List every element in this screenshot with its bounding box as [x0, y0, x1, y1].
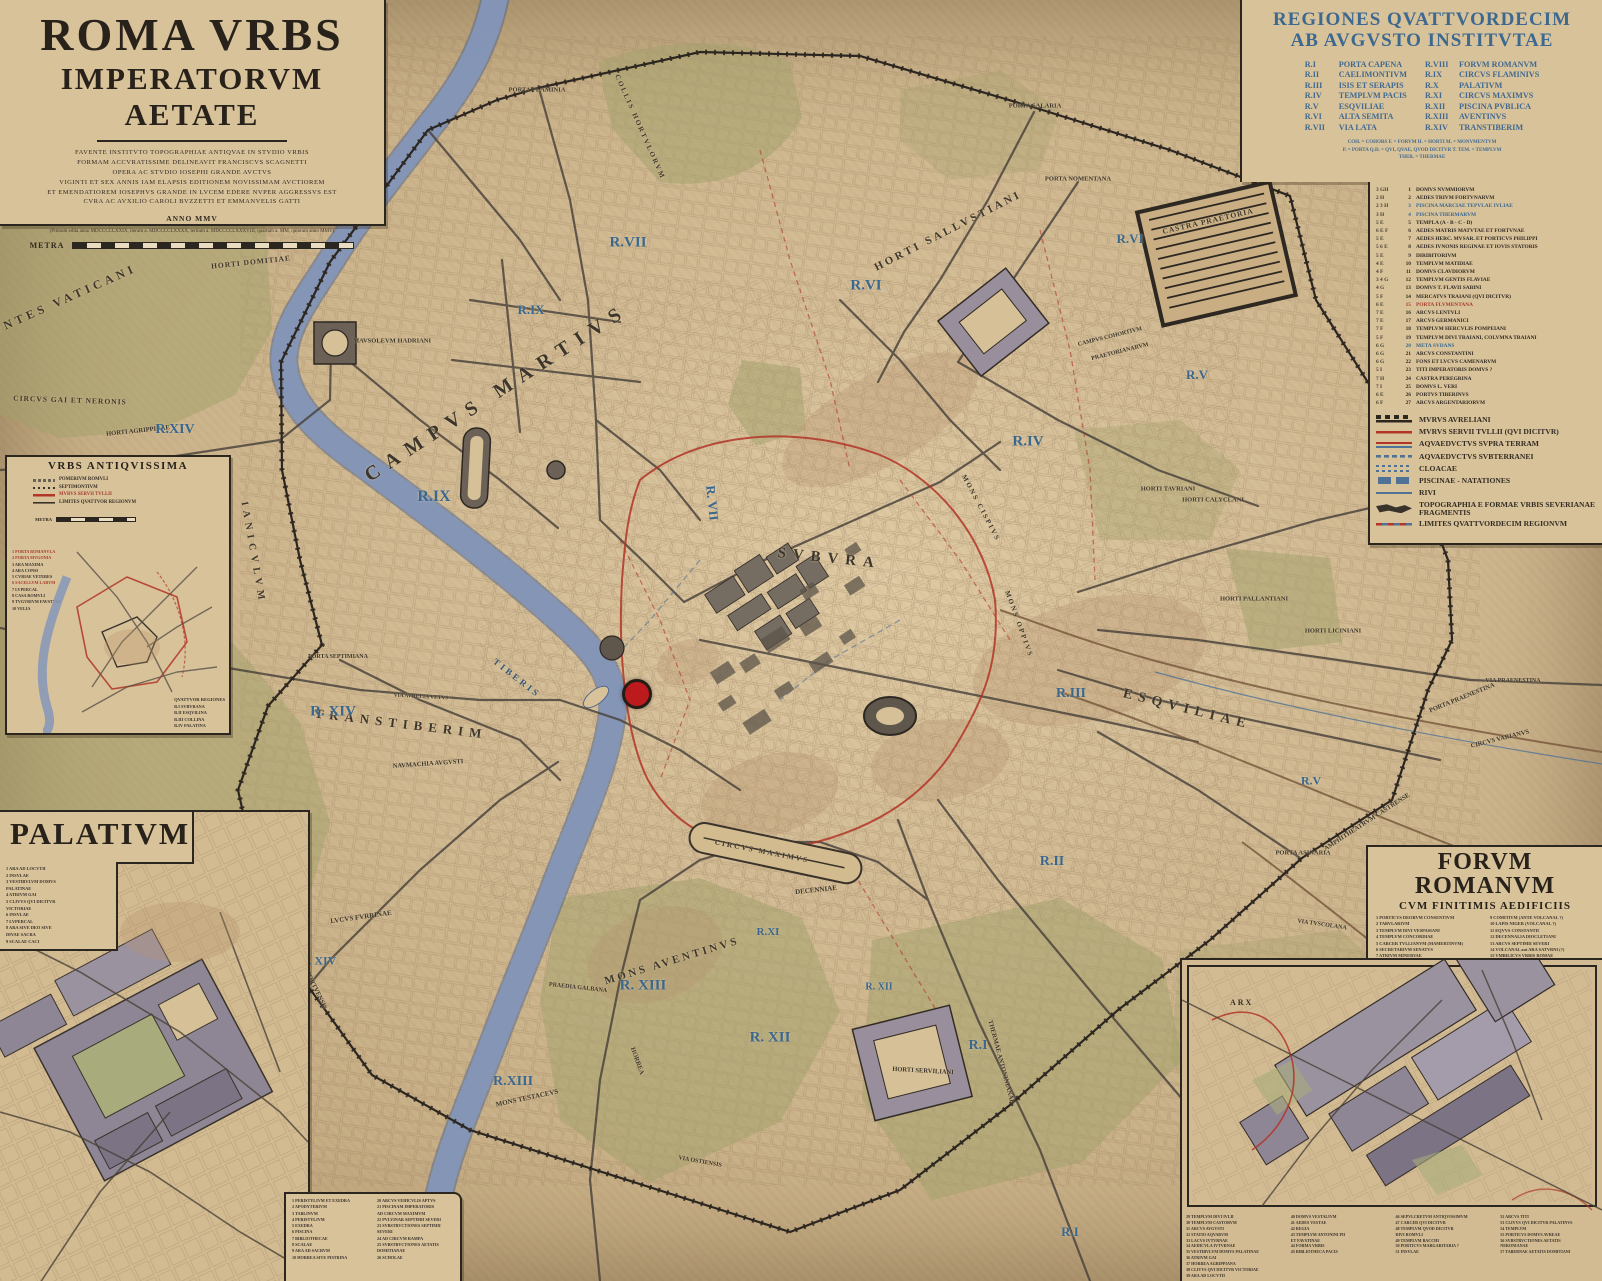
region-code: R.XI [1425, 91, 1459, 102]
south-legend-left: 1 PERISTYLIVM ET EXEDRA2 APODYTERIVM3 TA… [292, 1198, 371, 1281]
pantheon [547, 461, 565, 479]
region-code: R.XIV [1425, 123, 1459, 134]
south-legend-box: 1 PERISTYLIVM ET EXEDRA2 APODYTERIVM3 TA… [284, 1192, 462, 1281]
stadium-domitiani [460, 427, 491, 508]
forum-bottom-col1: 29 TEMPLVM DIVI IVLII30 TEMPLVM CASTORVM… [1186, 1214, 1286, 1279]
legend-symbol-label: MVRVS AVRELIANI [1419, 416, 1491, 424]
urbs-scale-label: METRA [35, 517, 52, 522]
forum-bottom-col4: 52 ARCVS TITI53 CLIVVS QVI DICITVR PALAT… [1500, 1214, 1600, 1279]
index-number: 4 [1398, 211, 1411, 219]
legend-symbol-label: MVRVS SERVII TVLLII (QVI DICITVR) [1419, 428, 1559, 436]
index-row: 7 F18TEMPLVM HERCVLIS POMPEIANI [1376, 325, 1598, 333]
index-row: 5 E7AEDES HERC. MVSAR. ET PORTICVS PHILI… [1376, 235, 1598, 243]
forum-arx-label: ARX [1230, 998, 1253, 1007]
urbs-inset-legend: POMERIVM ROMVLISEPTIMONTIVMMVRVS SERVII … [33, 477, 136, 507]
forum-romanum-header: FORVM ROMANVM CVM FINITIMIS AEDIFICIIS 1… [1366, 845, 1602, 958]
index-label: DOMVS NVMMIORVM [1416, 186, 1474, 194]
forum-title: FORVM ROMANVM [1368, 850, 1602, 898]
map-subtitle: IMPERATORVM AETATE [0, 61, 384, 133]
index-number: 27 [1398, 399, 1411, 407]
index-row: 5 F14MERCATVS TRAIANI (QVI DICITVR) [1376, 293, 1598, 301]
forum-item: 45 BIBLIOTHECA PACIS [1291, 1249, 1391, 1255]
colosseum-arena [876, 707, 904, 725]
legend-symbol-label: PISCINAE - NATATIONES [1419, 477, 1510, 485]
south-item: 10 HORREA SIVE PISTRINA [292, 1255, 371, 1261]
index-grid-ref: 4 E [1376, 260, 1398, 268]
legend-symbol-label: RIVI [1419, 489, 1436, 497]
scale-label: METRA [30, 241, 65, 250]
index-number: 19 [1398, 334, 1411, 342]
septimontium-symbol [33, 485, 55, 491]
index-row: 6 E15PORTA FLVMENTANA [1376, 301, 1598, 309]
region-row: R.IPORTA CAPENA [1305, 60, 1407, 71]
legend-symbol-row: TOPOGRAPHIA E FORMAE VRBIS SEVERIANAE FR… [1376, 501, 1598, 517]
index-number: 3 [1398, 202, 1411, 210]
index-row: 4 G13DOMVS T. FLAVII SABINI [1376, 284, 1598, 292]
index-number: 20 [1398, 342, 1411, 350]
index-number: 18 [1398, 325, 1411, 333]
map-title: ROMA VRBS [0, 8, 384, 61]
region-code: R.XII [1425, 102, 1459, 113]
rivi-symbol [1376, 489, 1412, 498]
region-name: PISCINA PVBLICA [1459, 102, 1531, 113]
index-grid-ref: 7 F [1376, 325, 1398, 333]
region-name: TEMPLVM PACIS [1339, 91, 1407, 102]
cloacae-symbol [1376, 464, 1412, 473]
urbs-legend-row: POMERIVM ROMVLI [33, 477, 136, 483]
index-grid-ref: 7 E [1376, 317, 1398, 325]
index-row: 6 G22FONS ET LVCVS CAMENARVM [1376, 358, 1598, 366]
index-number: 10 [1398, 260, 1411, 268]
palatium-item: VICTORIAE [6, 906, 113, 913]
abbreviation-line: P. = PORTA Q.D. = QVI, QVAE, QVOD DICITV… [1242, 147, 1602, 155]
index-row: 3 H4PISCINA THERMARVM [1376, 211, 1598, 219]
index-row: 7 I25DOMVS L. VERI [1376, 383, 1598, 391]
theatrum-marcelli [600, 636, 624, 660]
legend-symbol-label: AQVAEDVCTVS SVPRA TERRAM [1419, 440, 1539, 448]
title-ornament-rule [97, 140, 287, 142]
index-label: ARCVS ARGENTARIORVM [1416, 399, 1485, 407]
servian-symbol [1376, 428, 1412, 437]
region-row: R.XIVTRANSTIBERIM [1425, 123, 1539, 134]
index-number: 17 [1398, 317, 1411, 325]
region-code: R.IX [1425, 70, 1459, 81]
region-name: PALATIVM [1459, 81, 1502, 92]
index-label: PISCINA MARCIAE TEPVLAE IVLIAE [1416, 202, 1513, 210]
index-number: 16 [1398, 309, 1411, 317]
region-code: R.IV [1305, 91, 1339, 102]
index-label: ARCVS CONSTANTINI [1416, 350, 1474, 358]
index-label: TEMPLVM GENTIS FLAVIAE [1416, 276, 1490, 284]
region-name: ESQVILIAE [1339, 102, 1385, 113]
index-grid-ref: 6 E [1376, 301, 1398, 309]
index-label: TEMPLVM HERCVLIS POMPEIANI [1416, 325, 1506, 333]
piscinae-symbol [1376, 476, 1412, 485]
palatium-item: 4 ATRIVM GAI [6, 892, 113, 899]
region-name: CAELIMONTIVM [1339, 70, 1407, 81]
region-name: CIRCVS FLAMINIVS [1459, 70, 1539, 81]
region-name: CIRCVS MAXIMVS [1459, 91, 1533, 102]
regiones-legend: REGIONES QVATTVORDECIM AB AVGVSTO INSTIT… [1240, 0, 1602, 182]
index-grid-ref: 6 E F [1376, 227, 1398, 235]
index-grid-ref: 2 3 H [1376, 202, 1398, 210]
index-row: 4 E10TEMPLVM MATIDIAE [1376, 260, 1598, 268]
index-label: TEMPLA (A - B - C - D) [1416, 219, 1472, 227]
index-row: 7 E17ARCVS GERMANICI [1376, 317, 1598, 325]
region-code: R.II [1305, 70, 1339, 81]
index-number: 25 [1398, 383, 1411, 391]
south-item: 26 SCHOLAE [377, 1255, 456, 1261]
region-name: TRANSTIBERIM [1459, 123, 1523, 134]
palatium-item: 8 ARA SIVE DEO SIVE [6, 925, 113, 932]
forum-bottom-col3: 46 SEPVLCRETVM ANTIQVISSIMVM47 CARCER QV… [1396, 1214, 1496, 1279]
index-grid-ref: 6 E [1376, 391, 1398, 399]
index-row: 7 H24CASTRA PEREGRINA [1376, 375, 1598, 383]
index-label: PORTVS TIBERINVS [1416, 391, 1469, 399]
urbs-scale-bar [56, 517, 136, 522]
urbs-legend-label: MVRVS SERVII TVLLII [59, 492, 112, 497]
index-grid-ref: 5 F [1376, 334, 1398, 342]
index-number: 8 [1398, 243, 1411, 251]
index-number: 9 [1398, 252, 1411, 260]
index-grid-ref: 5 E [1376, 219, 1398, 227]
index-label: CASTRA PEREGRINA [1416, 375, 1472, 383]
index-label: MERCATVS TRAIANI (QVI DICITVR) [1416, 293, 1511, 301]
index-row: 5 6 E8AEDES IVNONIS REGINAE ET IOVIS STA… [1376, 243, 1598, 251]
index-number: 11 [1398, 268, 1411, 276]
index-label: DOMVS CLAVDIORVM [1416, 268, 1475, 276]
pomerium-symbol [33, 477, 55, 483]
region-name: ISIS ET SERAPIS [1339, 81, 1404, 92]
palatium-item: 5 CLIVVS QVI DICITVR [6, 899, 113, 906]
index-number: 7 [1398, 235, 1411, 243]
index-number: 2 [1398, 194, 1411, 202]
region-name: FORVM ROMANVM [1459, 60, 1537, 71]
target-marker[interactable] [622, 679, 652, 709]
palatium-inset: PALATIVM 1 ARA AD LOCVTII2 INSVLAE3 VEST… [0, 810, 310, 1281]
urbs-sites-list: 1 PORTA ROMANVLA2 PORTA MVGONIA3 ARA MAX… [12, 549, 70, 612]
region-row: R.VIALTA SEMITA [1305, 112, 1407, 123]
region-code: R.X [1425, 81, 1459, 92]
index-row: 2 3 H3PISCINA MARCIAE TEPVLAE IVLIAE [1376, 202, 1598, 210]
index-grid-ref: 6 G [1376, 358, 1398, 366]
regiones-abbreviations: COH. = COHORS F. = FORVM H. = HORTI M. =… [1242, 139, 1602, 162]
forum-bottom-col2: 40 DOMVS VESTALIVM41 AEDES VESTAE42 REGI… [1291, 1214, 1391, 1279]
index-number: 26 [1398, 391, 1411, 399]
index-row: 5 F19TEMPLVM DIVI TRAIANI, COLVMNA TRAIA… [1376, 334, 1598, 342]
regiones-column: R.IPORTA CAPENAR.IICAELIMONTIVMR.IIIISIS… [1305, 60, 1407, 134]
palatium-item: 7 LVPERCAL [6, 919, 113, 926]
urbs-regions-list: R.I SVBVRANAR.II ESQVILINAR.III COLLINAR… [174, 704, 225, 729]
index-number: 12 [1398, 276, 1411, 284]
credit-line: ET EMENDATIOREM IOSEPHVS GRANDE IN LVCEM… [0, 188, 384, 198]
aq-sub-symbol [1376, 452, 1412, 461]
index-grid-ref: 5 6 E [1376, 243, 1398, 251]
monument-index: 3 GH1DOMVS NVMMIORVM2 H2AEDES TRIVM FORT… [1376, 186, 1598, 407]
index-row: 6 E F6AEDES MATRIS MATVTAE ET FORTVNAE [1376, 227, 1598, 235]
index-grid-ref: 4 G [1376, 284, 1398, 292]
map-canvas: MONTES VATICANIHORTI DOMITIAEMAVSOLEVM H… [0, 0, 1602, 1281]
index-row: 6 E26PORTVS TIBERINVS [1376, 391, 1598, 399]
abbreviation-line: COH. = COHORS F. = FORVM H. = HORTI M. =… [1242, 139, 1602, 147]
urbs-legend-row: SEPTIMONTIVM [33, 485, 136, 491]
credit-line: FAVENTE INSTITVTO TOPOGRAPHIAE ANTIQVAE … [0, 148, 384, 158]
index-number: 15 [1398, 301, 1411, 309]
index-row: 6 G20META SVDANS [1376, 342, 1598, 350]
region-row: R.XIIPISCINA PVBLICA [1425, 102, 1539, 113]
index-grid-ref: 7 H [1376, 375, 1398, 383]
legend-symbol-label: CLOACAE [1419, 465, 1457, 473]
index-number: 21 [1398, 350, 1411, 358]
index-row: 3 GH1DOMVS NVMMIORVM [1376, 186, 1598, 194]
index-label: AEDES HERC. MVSAR. ET PORTICVS PHILIPPI [1416, 235, 1537, 243]
index-number: 23 [1398, 366, 1411, 374]
region-row: R.XICIRCVS MAXIMVS [1425, 91, 1539, 102]
forum-romanum-map-panel: ARX 29 TEMPLVM DIVI IVLII30 TEMPLVM CAST… [1180, 958, 1602, 1281]
legend-symbol-label: TOPOGRAPHIA E FORMAE VRBIS SEVERIANAE FR… [1419, 501, 1598, 517]
index-grid-ref: 5 E [1376, 235, 1398, 243]
credit-line: VIGINTI ET SEX ANNIS IAM ELAPSIS EDITION… [0, 178, 384, 188]
index-number: 5 [1398, 219, 1411, 227]
index-grid-ref: 5 I [1376, 366, 1398, 374]
palatium-item: 3 VESTIBVLVM DOMVS [6, 879, 113, 886]
index-row: 5 E9DIRIBITORIVM [1376, 252, 1598, 260]
forum-list-bottom: 29 TEMPLVM DIVI IVLII30 TEMPLVM CASTORVM… [1186, 1214, 1600, 1279]
urbs-legend-label: POMERIVM ROMVLI [59, 477, 108, 482]
urbs-legend-label: LIMITES QVATTVOR REGIONVM [59, 500, 136, 505]
legend-symbol-row: LIMITES QVATTVORDECIM REGIONVM [1376, 520, 1598, 529]
index-label: AEDES MATRIS MATVTAE ET FORTVNAE [1416, 227, 1524, 235]
index-number: 6 [1398, 227, 1411, 235]
credit-line: CVRA AC AVXILIO CAROLI BVZZETTI ET EMMAN… [0, 197, 384, 207]
forum-item: 57 TABERNAE AETATIS DOMITIANI [1500, 1249, 1600, 1255]
forum-item: 51 INSVLAE [1396, 1249, 1496, 1255]
region-code: R.VIII [1425, 60, 1459, 71]
index-row: 5 I23TITI IMPERATORIS DOMVS ? [1376, 366, 1598, 374]
legend-symbol-row: AQVAEDVCTVS SVBTERRANEI [1376, 452, 1598, 461]
index-row: 6 G21ARCVS CONSTANTINI [1376, 350, 1598, 358]
urbs-region: R.IV PALATINA [174, 723, 225, 729]
index-number: 1 [1398, 186, 1411, 194]
index-label: DIRIBITORIVM [1416, 252, 1456, 260]
urbs-legend-label: SEPTIMONTIVM [59, 485, 98, 490]
urbs-scale-row: METRA [35, 517, 136, 522]
index-label: PORTA FLVMENTANA [1416, 301, 1473, 309]
index-label: DOMVS T. FLAVII SABINI [1416, 284, 1481, 292]
urbs-legend-row: LIMITES QVATTVOR REGIONVM [33, 500, 136, 506]
limites-symbol [1376, 520, 1412, 529]
index-grid-ref: 7 E [1376, 309, 1398, 317]
region-name: ALTA SEMITA [1339, 112, 1394, 123]
urbs-quattuor-regiones: QVATTVOR REGIONES R.I SVBVRANAR.II ESQVI… [174, 697, 225, 729]
index-label: ARCVS GERMANICI [1416, 317, 1469, 325]
title-cartouche: ROMA VRBS IMPERATORVM AETATE FAVENTE INS… [0, 0, 386, 226]
legend-symbol-row: RIVI [1376, 489, 1598, 498]
urbs-site: 10 VELIA [12, 606, 70, 612]
aq-supra-symbol [1376, 440, 1412, 449]
palatium-list: 1 ARA AD LOCVTII2 INSVLAE3 VESTIBVLVM DO… [0, 862, 118, 951]
index-label: AEDES IVNONIS REGINAE ET IOVIS STATORIS [1416, 243, 1538, 251]
urbs-inset-title: VRBS ANTIQVISSIMA [7, 460, 229, 472]
index-row: 4 F11DOMVS CLAVDIORVM [1376, 268, 1598, 276]
index-number: 13 [1398, 284, 1411, 292]
mausoleum-hadriani-drum [322, 330, 348, 356]
legend-symbol-row: MVRVS AVRELIANI [1376, 415, 1598, 424]
region-row: R.XPALATIVM [1425, 81, 1539, 92]
credit-line: FORMAM ACCVRATISSIME DELINEAVIT FRANCISC… [0, 158, 384, 168]
index-grid-ref: 4 F [1376, 268, 1398, 276]
regiones-title-1: REGIONES QVATTVORDECIM [1242, 10, 1602, 31]
frag-symbol [1376, 504, 1412, 513]
palatium-item: 9 SCALAE CACI [6, 939, 113, 946]
region-code: R.VII [1305, 123, 1339, 134]
wall-symbol [1376, 415, 1412, 424]
index-label: PISCINA THERMARVM [1416, 211, 1476, 219]
index-grid-ref: 2 H [1376, 194, 1398, 202]
urbs-legend-row: MVRVS SERVII TVLLII [33, 492, 136, 498]
index-label: TEMPLVM DIVI TRAIANI, COLVMNA TRAIANI [1416, 334, 1537, 342]
index-grid-ref: 6 G [1376, 342, 1398, 350]
index-grid-ref: 7 I [1376, 383, 1398, 391]
legend-symbol-row: AQVAEDVCTVS SVPRA TERRAM [1376, 440, 1598, 449]
palatium-item: DIVAE SACRA [6, 932, 113, 939]
region-row: R.XIIIAVENTINVS [1425, 112, 1539, 123]
index-label: TEMPLVM MATIDIAE [1416, 260, 1473, 268]
region-row: R.IXCIRCVS FLAMINIVS [1425, 70, 1539, 81]
abbreviation-line: THER. = THERMAE [1242, 154, 1602, 162]
region-name: PORTA CAPENA [1339, 60, 1402, 71]
index-grid-ref: 6 G [1376, 350, 1398, 358]
palatium-title-tab: PALATIVM [0, 812, 194, 864]
index-label: DOMVS L. VERI [1416, 383, 1457, 391]
servian-symbol [33, 492, 55, 498]
index-row: 3 4 G12TEMPLVM GENTIS FLAVIAE [1376, 276, 1598, 284]
monument-index-panel: 3 GH1DOMVS NVMMIORVM2 H2AEDES TRIVM FORT… [1368, 182, 1602, 545]
index-row: 2 H2AEDES TRIVM FORTVNARVM [1376, 194, 1598, 202]
index-row: 7 E16ARCVS LENTVLI [1376, 309, 1598, 317]
urbs-antiquissima-inset: VRBS ANTIQVISSIMA POMERIVM ROMVLISEPTIMO… [5, 455, 231, 735]
index-label: FONS ET LVCVS CAMENARVM [1416, 358, 1496, 366]
forum-item: 39 ARA AD LOCVTII [1186, 1273, 1286, 1279]
region-row: R.VIIVIA LATA [1305, 123, 1407, 134]
index-grid-ref: 3 4 G [1376, 276, 1398, 284]
regiones-title-2: AB AVGVSTO INSTITVTAE [1242, 31, 1602, 52]
legend-symbol-label: AQVAEDVCTVS SVBTERRANEI [1419, 453, 1533, 461]
credit-line: OPERA AC STVDIO IOSEPHI GRANDE AVCTVS [0, 168, 384, 178]
region-row: R.IVTEMPLVM PACIS [1305, 91, 1407, 102]
palatium-title: PALATIVM [10, 816, 192, 852]
palatium-item: 2 INSVLAE [6, 873, 113, 880]
index-label: ARCVS LENTVLI [1416, 309, 1460, 317]
title-editions: (Primum edita anno MDCCCCLXXIX, iterum a… [0, 229, 384, 234]
region-name: AVENTINVS [1459, 112, 1506, 123]
region-row: R.VESQVILIAE [1305, 102, 1407, 113]
index-grid-ref: 3 GH [1376, 186, 1398, 194]
palatium-item: 1 ARA AD LOCVTII [6, 866, 113, 873]
region-code: R.XIII [1425, 112, 1459, 123]
index-grid-ref: 3 H [1376, 211, 1398, 219]
region-row: R.IICAELIMONTIVM [1305, 70, 1407, 81]
region-row: R.VIIIFORVM ROMANVM [1425, 60, 1539, 71]
region-name: VIA LATA [1339, 123, 1377, 134]
index-number: 24 [1398, 375, 1411, 383]
forum-subtitle: CVM FINITIMIS AEDIFICIIS [1368, 900, 1602, 912]
index-number: 14 [1398, 293, 1411, 301]
limites4-symbol [33, 500, 55, 506]
palatium-item: 6 INSVLAE [6, 912, 113, 919]
index-row: 5 E5TEMPLA (A - B - C - D) [1376, 219, 1598, 227]
scale-row: METRA [0, 241, 384, 250]
index-label: META SVDANS [1416, 342, 1454, 350]
index-number: 22 [1398, 358, 1411, 366]
regiones-column: R.VIIIFORVM ROMANVMR.IXCIRCVS FLAMINIVSR… [1425, 60, 1539, 134]
legend-symbol-row: MVRVS SERVII TVLLII (QVI DICITVR) [1376, 428, 1598, 437]
region-code: R.V [1305, 102, 1339, 113]
index-label: TITI IMPERATORIS DOMVS ? [1416, 366, 1492, 374]
scale-bar [72, 242, 354, 249]
index-grid-ref: 5 F [1376, 293, 1398, 301]
legend-symbol-label: LIMITES QVATTVORDECIM REGIONVM [1419, 520, 1567, 528]
regiones-list: R.IPORTA CAPENAR.IICAELIMONTIVMR.IIIISIS… [1242, 60, 1602, 134]
index-grid-ref: 6 F [1376, 399, 1398, 407]
region-row: R.IIIISIS ET SERAPIS [1305, 81, 1407, 92]
index-grid-ref: 5 E [1376, 252, 1398, 260]
legend-symbol-row: PISCINAE - NATATIONES [1376, 476, 1598, 485]
region-code: R.I [1305, 60, 1339, 71]
south-legend-right: 20 ARCVS VEHICVLIS APTVS21 PISCINAM IMPE… [377, 1198, 456, 1281]
region-code: R.III [1305, 81, 1339, 92]
legend-symbol-row: CLOACAE [1376, 464, 1598, 473]
title-credits: FAVENTE INSTITVTO TOPOGRAPHIAE ANTIQVAE … [0, 148, 384, 207]
urbs-regions-title: QVATTVOR REGIONES [174, 697, 225, 704]
region-code: R.VI [1305, 112, 1339, 123]
index-label: AEDES TRIVM FORTVNARVM [1416, 194, 1494, 202]
title-anno: ANNO MMV [0, 214, 384, 223]
index-row: 6 F27ARCVS ARGENTARIORVM [1376, 399, 1598, 407]
symbols-legend: MVRVS AVRELIANIMVRVS SERVII TVLLII (QVI … [1376, 415, 1598, 528]
palatium-item: PALATINAE [6, 886, 113, 893]
